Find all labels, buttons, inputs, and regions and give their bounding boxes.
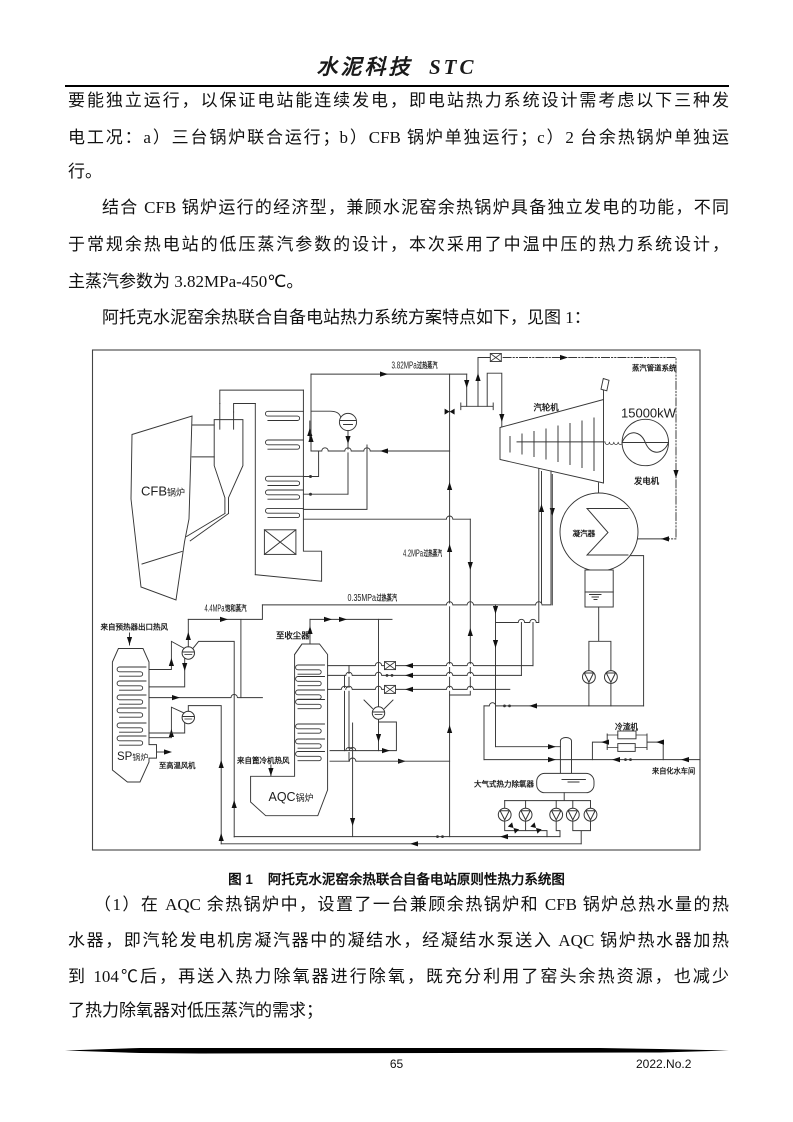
svg-text:4.4MPa: 4.4MPa <box>205 604 225 615</box>
svg-text:CFB锅炉: CFB锅炉 <box>141 484 185 499</box>
svg-text:来自篦冷机热风: 来自篦冷机热风 <box>236 755 290 765</box>
svg-text:饱和蒸汽: 饱和蒸汽 <box>225 603 247 613</box>
svg-text:凝汽器: 凝汽器 <box>573 528 596 538</box>
svg-text:3.82MPa: 3.82MPa <box>392 361 417 372</box>
svg-text:过热蒸汽: 过热蒸汽 <box>417 360 438 370</box>
svg-text:来自化水车间: 来自化水车间 <box>651 767 695 776</box>
svg-text:发电机: 发电机 <box>633 476 660 486</box>
svg-text:AQC锅炉: AQC锅炉 <box>269 790 314 804</box>
svg-text:4.2MPa: 4.2MPa <box>403 549 423 560</box>
svg-text:过热蒸汽: 过热蒸汽 <box>377 593 398 603</box>
svg-text:来自预热器出口热风: 来自预热器出口热风 <box>100 622 169 632</box>
svg-text:汽轮机: 汽轮机 <box>534 403 560 413</box>
svg-text:过热蒸汽: 过热蒸汽 <box>424 548 443 558</box>
svg-text:SP锅炉: SP锅炉 <box>117 751 148 763</box>
svg-text:冷渣机: 冷渣机 <box>615 722 638 732</box>
svg-text:15000kW: 15000kW <box>621 406 677 421</box>
svg-text:至收尘器: 至收尘器 <box>276 631 310 641</box>
svg-text:0.35MPa: 0.35MPa <box>348 593 377 604</box>
svg-text:至高温风机: 至高温风机 <box>159 761 196 770</box>
svg-text:大气式热力除氧器: 大气式热力除氧器 <box>474 779 534 789</box>
svg-text:蒸汽管道系统: 蒸汽管道系统 <box>632 364 677 373</box>
